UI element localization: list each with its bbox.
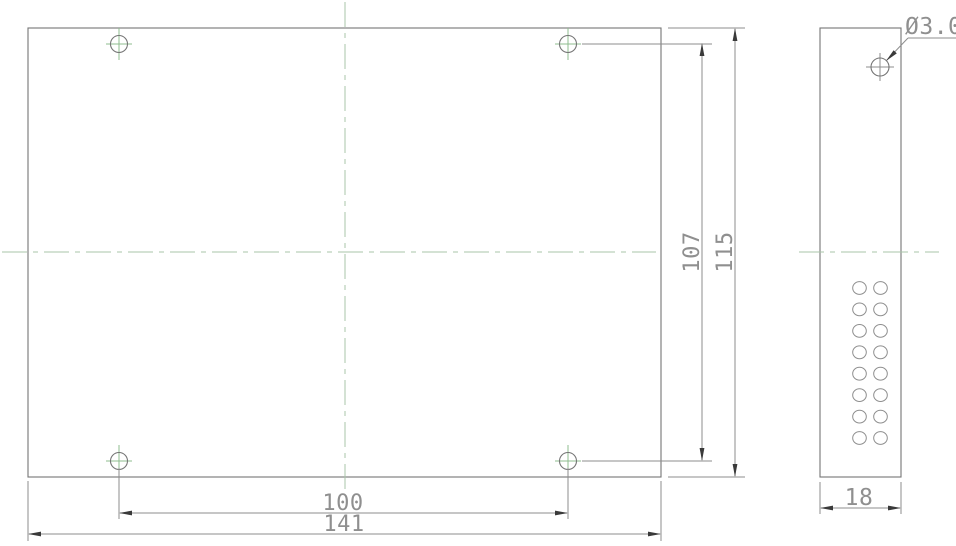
vent-hole bbox=[853, 367, 867, 380]
vent-hole bbox=[874, 389, 888, 402]
vent-hole bbox=[853, 389, 867, 402]
arrowhead-left bbox=[119, 511, 132, 516]
mounting-hole-top-left bbox=[106, 28, 132, 60]
vent-hole bbox=[853, 282, 867, 295]
vent-hole-grid bbox=[853, 282, 888, 445]
dimension-hole-diameter: Ø3.0 bbox=[886, 14, 956, 61]
arrowhead-right bbox=[555, 511, 568, 516]
vent-hole bbox=[874, 303, 888, 316]
vent-hole bbox=[874, 325, 888, 338]
arrowhead-right bbox=[648, 532, 661, 537]
side-view bbox=[799, 28, 939, 477]
vent-hole bbox=[853, 303, 867, 316]
drawing-canvas: 107 115 100 141 18 bbox=[0, 0, 956, 546]
vent-hole bbox=[874, 346, 888, 359]
vent-hole bbox=[853, 346, 867, 359]
arrowhead-up bbox=[733, 28, 738, 41]
vent-hole bbox=[853, 325, 867, 338]
arrowhead-up bbox=[700, 43, 705, 56]
dim-label-overall-height: 115 bbox=[713, 231, 738, 272]
arrowhead-left bbox=[28, 532, 41, 537]
drawing-sheet: 107 115 100 141 18 bbox=[0, 0, 956, 546]
mounting-hole-top-right bbox=[555, 28, 581, 60]
dim-label-hole-spacing-vertical: 107 bbox=[680, 231, 705, 272]
dim-label-side-depth: 18 bbox=[845, 485, 874, 511]
arrowhead-down bbox=[733, 464, 738, 477]
dimension-side-depth: 18 bbox=[820, 482, 901, 514]
vent-hole bbox=[874, 367, 888, 380]
vent-hole bbox=[853, 432, 867, 445]
arrowhead-leader bbox=[886, 50, 897, 61]
arrowhead-right bbox=[888, 506, 901, 511]
vent-hole bbox=[874, 410, 888, 423]
vent-hole bbox=[853, 410, 867, 423]
arrowhead-left bbox=[820, 506, 833, 511]
dim-label-hole-diameter: Ø3.0 bbox=[905, 14, 956, 40]
vent-hole bbox=[874, 282, 888, 295]
vent-hole bbox=[874, 432, 888, 445]
front-view bbox=[2, 2, 661, 489]
dim-label-overall-width: 141 bbox=[323, 512, 364, 537]
arrowhead-down bbox=[700, 448, 705, 461]
